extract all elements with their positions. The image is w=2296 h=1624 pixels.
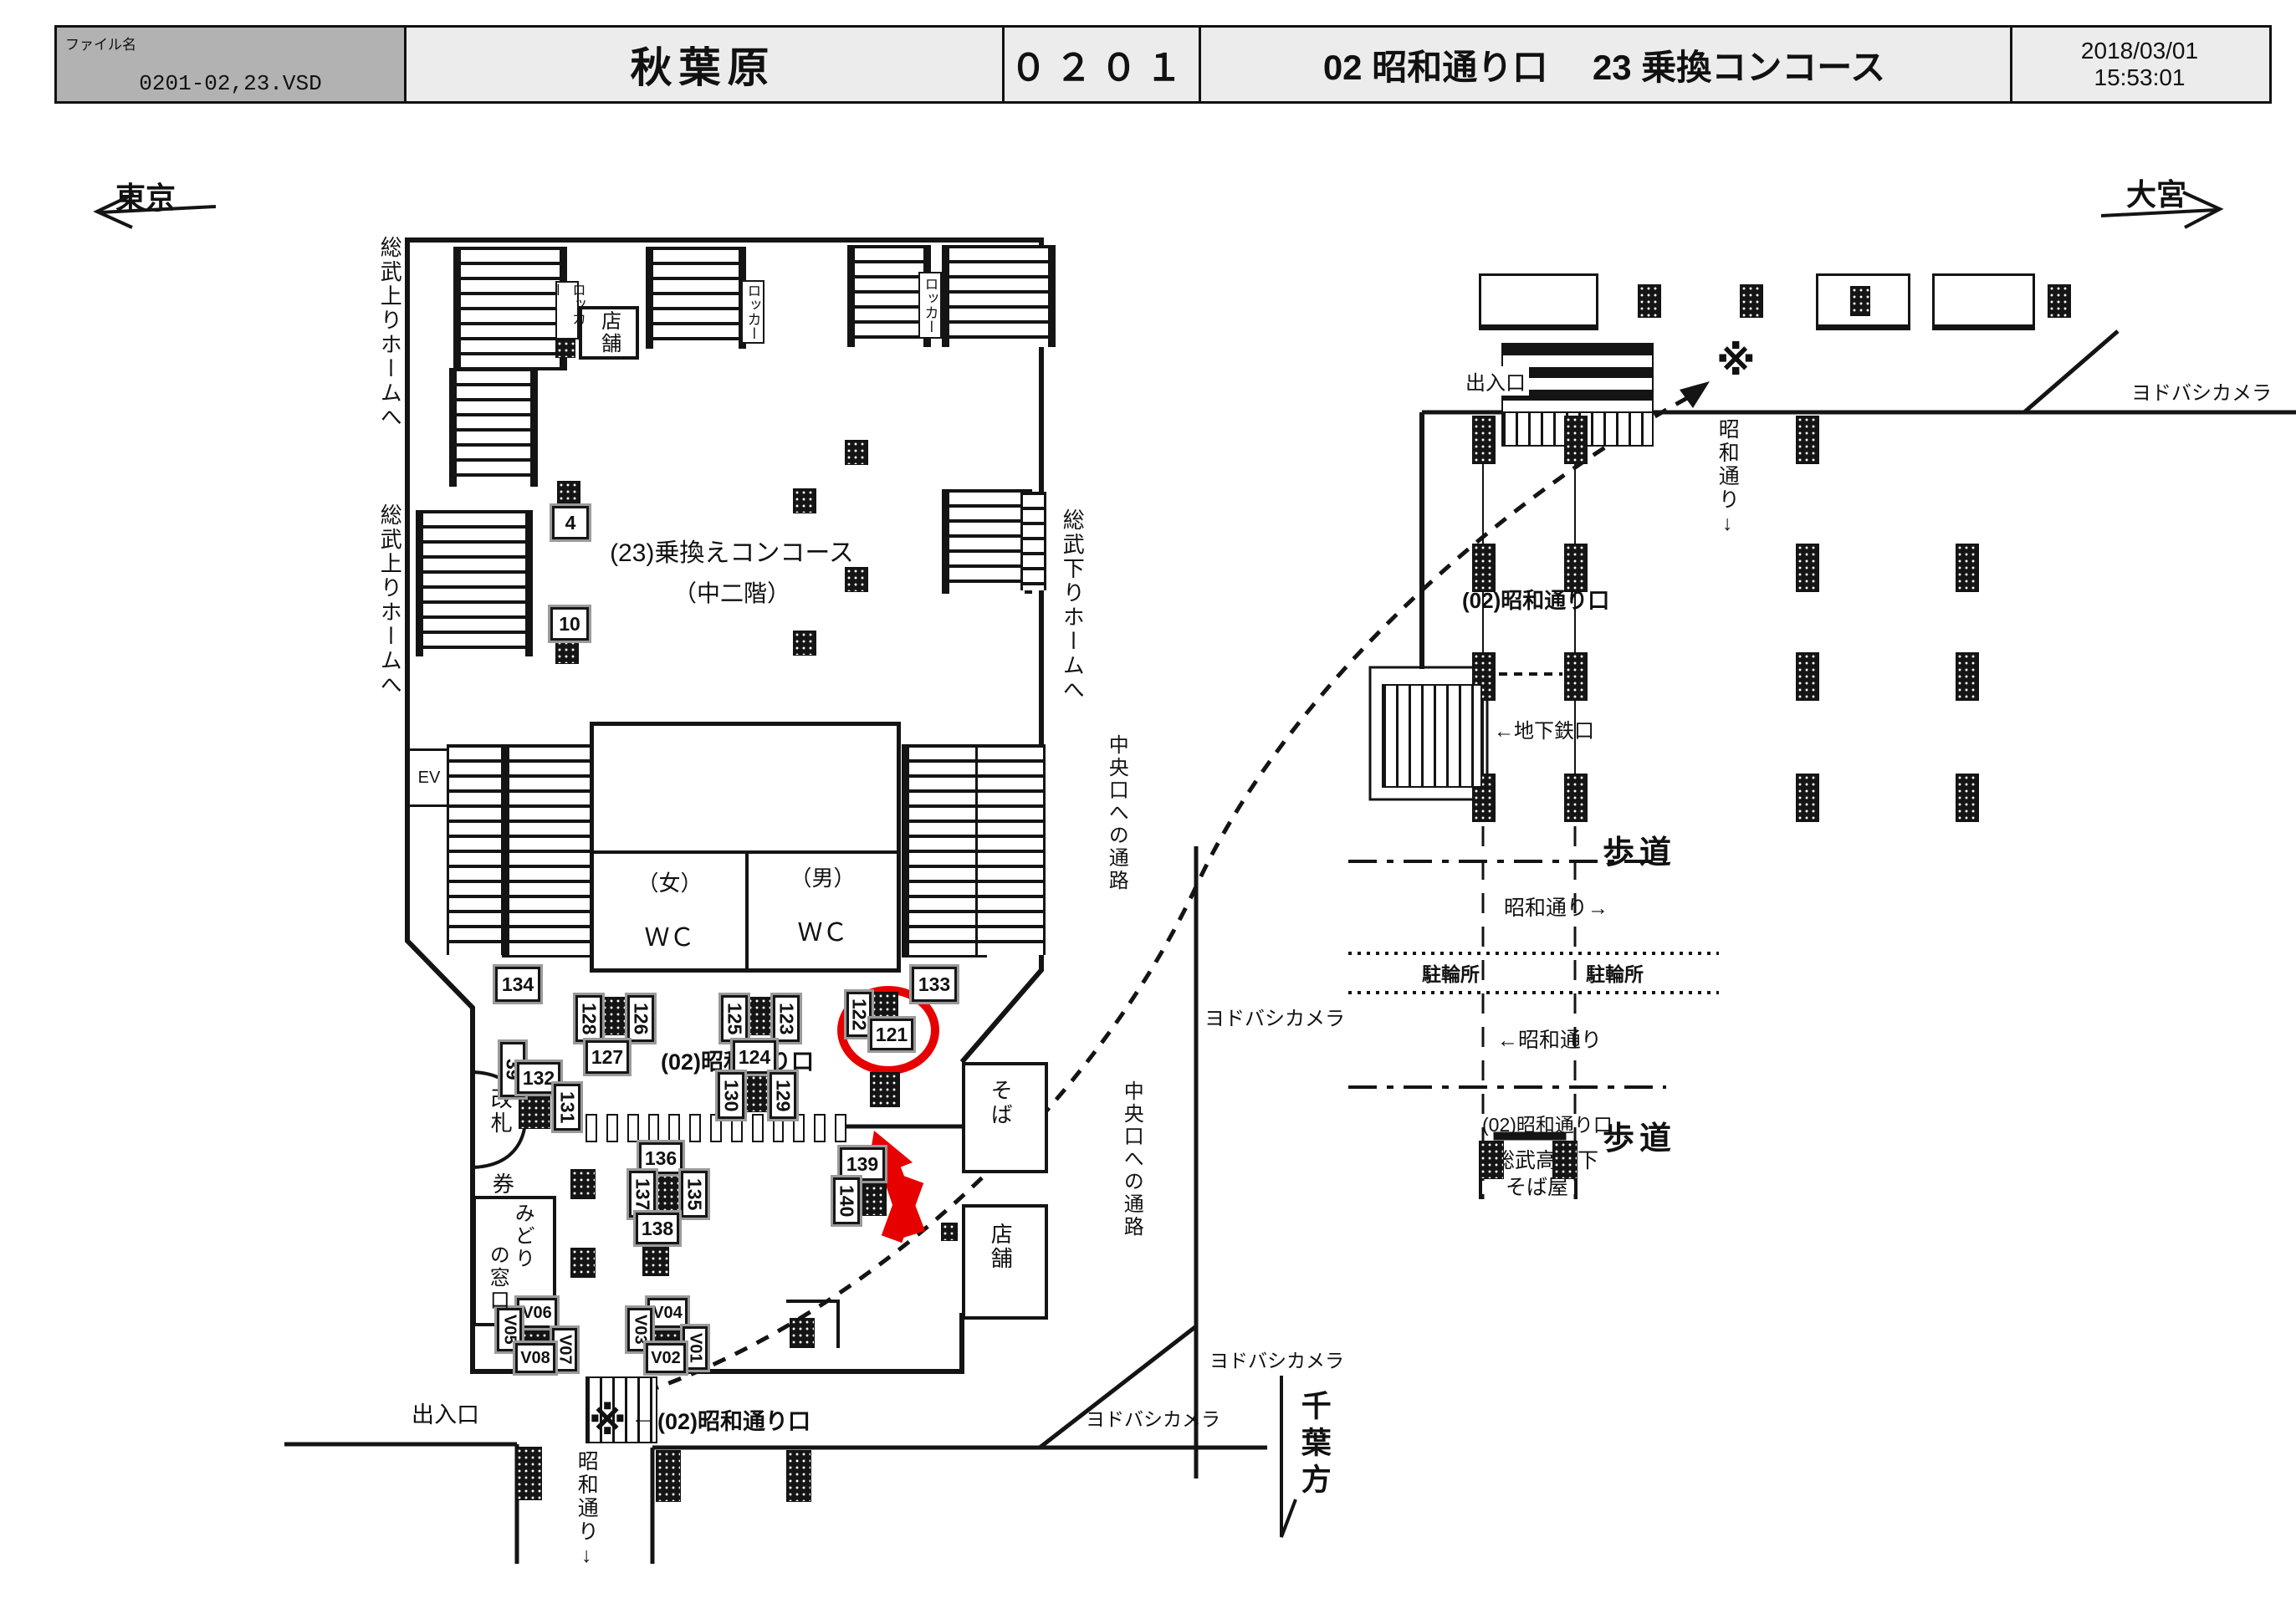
- soba-label: そば: [989, 1079, 1011, 1127]
- ad-sign-v02: V02: [646, 1343, 686, 1373]
- pillar: [555, 639, 579, 664]
- kome-mark-right: ※: [1716, 338, 1756, 385]
- bldg-outline-1: [1479, 273, 1598, 330]
- pillar: [790, 1318, 815, 1348]
- wc-men-wc: ＷＣ: [749, 912, 897, 948]
- stairs-wc-left: [502, 744, 601, 958]
- pillar: [870, 992, 898, 1019]
- ticket-gate-row: [586, 1114, 846, 1139]
- ticket-gate: [648, 1114, 660, 1142]
- ticket-gate: [627, 1114, 639, 1142]
- ticket-gate: [814, 1114, 826, 1142]
- stairs-mid-right-2: [1020, 492, 1046, 590]
- ad-sign-138: 138: [636, 1213, 679, 1244]
- exit-label-right-plan: 出入口: [1462, 366, 1529, 396]
- ticket-gate: [668, 1114, 680, 1142]
- pillar: [557, 481, 580, 506]
- ad-sign-v08: V08: [515, 1343, 555, 1373]
- showa-dori-right-label: 昭和通り→: [1504, 891, 1608, 922]
- ad-sign-10: 10: [550, 607, 589, 641]
- pillar: [743, 1074, 770, 1112]
- yodobashi-label-wall: ヨドバシカメラ: [1204, 1002, 1345, 1031]
- ad-sign-140: 140: [833, 1177, 860, 1224]
- showa-exit-label-bottom: (02)昭和通り口: [657, 1403, 811, 1436]
- ad-sign-125: 125: [721, 995, 748, 1042]
- ad-sign-123: 123: [773, 995, 800, 1042]
- showa-exit-label-right-plan: (02)昭和通り口: [1462, 584, 1609, 615]
- linework-layer: [0, 0, 2296, 1624]
- pillar: [845, 567, 868, 592]
- sidewalk-label-bottom: 歩道: [1603, 1112, 1676, 1158]
- pillar: [857, 1177, 887, 1216]
- pillar: [1956, 774, 1979, 822]
- yodobashi-label-street-right: ヨドバシカメラ: [1209, 1345, 1344, 1373]
- ad-sign-126: 126: [627, 995, 654, 1042]
- pillar: [746, 997, 773, 1035]
- pillar: [793, 488, 816, 513]
- ticket-gate: [586, 1114, 597, 1142]
- subway-entrance-label: ←地下鉄口: [1494, 714, 1594, 743]
- ticket-gate: [752, 1114, 764, 1142]
- ad-sign-v07: V07: [552, 1328, 577, 1371]
- pillar: [1638, 284, 1661, 318]
- ad-sign-129: 129: [770, 1072, 796, 1119]
- shop-room-label: 店舗: [989, 1223, 1011, 1271]
- yodobashi-label-top-right: ヨドバシカメラ: [2131, 376, 2272, 406]
- pillar: [2048, 284, 2071, 318]
- showa-exit-label-bottom-right-plan: (02)昭和通り口: [1482, 1109, 1613, 1137]
- stairs-mid-left: [449, 368, 538, 487]
- pillar: [1472, 416, 1496, 464]
- pillar: [656, 1450, 681, 1502]
- ad-sign-136: 136: [639, 1142, 683, 1174]
- ad-sign-124: 124: [733, 1040, 776, 1074]
- ad-sign-v04: V04: [647, 1298, 688, 1328]
- yodobashi-label-street-diag: ヨドバシカメラ: [1086, 1403, 1220, 1432]
- stairs-platform-up: [416, 510, 533, 656]
- pillar: [642, 1241, 669, 1276]
- pillar: [1564, 652, 1588, 701]
- stairs-wc-left-outer: [447, 744, 504, 955]
- ticket-gate: [689, 1114, 701, 1142]
- mezzanine-title: （中二階）: [577, 575, 887, 609]
- concourse-title: (23)乗換えコンコース: [577, 532, 887, 569]
- ad-sign-122: 122: [846, 992, 872, 1037]
- stairs-lockers-4: [942, 245, 1056, 347]
- midori-label-1: みどり: [512, 1203, 533, 1270]
- ad-sign-131: 131: [554, 1084, 580, 1131]
- locker-label-2: ロッカー: [741, 280, 764, 344]
- pillar: [793, 631, 816, 656]
- ev-box: EV: [407, 748, 451, 807]
- ticket-gate: [606, 1114, 618, 1142]
- pillar: [654, 1172, 681, 1211]
- stairs-wc-right-outer: [975, 744, 1046, 955]
- kome-mark-left: ※: [589, 1398, 626, 1443]
- pillar: [1796, 416, 1819, 464]
- pillar: [870, 1072, 900, 1107]
- ad-sign-139: 139: [840, 1147, 885, 1181]
- ad-sign-127: 127: [586, 1040, 629, 1074]
- sobu-down-label: 総武下りホームへ: [1061, 508, 1083, 702]
- locker-label-1: ロッカー: [555, 281, 579, 340]
- pillar: [845, 440, 868, 465]
- bldg-outline-3: [1932, 273, 2035, 330]
- pillar: [1796, 544, 1819, 592]
- ad-sign-128: 128: [575, 995, 602, 1042]
- ad-sign-v06: V06: [517, 1298, 557, 1328]
- pillar: [515, 1447, 542, 1500]
- ticket-gate: [835, 1114, 846, 1142]
- pillar: [1796, 774, 1819, 822]
- wc-block: （女） ＷＣ （男） ＷＣ: [590, 722, 901, 973]
- pillar: [1740, 284, 1763, 318]
- pillar: [601, 997, 627, 1035]
- stairs-wc-right: [902, 744, 987, 958]
- chuo-passage-label-1: 中央口への通路: [1106, 734, 1127, 892]
- locker-label-3: ロッカー: [918, 272, 942, 339]
- stairs-mid-right: [942, 489, 1032, 594]
- wc-women-wc: ＷＣ: [594, 917, 745, 953]
- bicycle-parking-left: 駐輪所: [1422, 958, 1480, 987]
- showa-street-down-right: 昭和通り↓: [1716, 418, 1738, 538]
- pillar: [941, 1223, 958, 1241]
- pillar: [555, 340, 575, 358]
- pillar: [786, 1450, 811, 1502]
- pillar: [1850, 286, 1870, 316]
- pillar: [570, 1169, 596, 1199]
- station-drawing-page: { "header": { "file_label": "ファイル名", "fi…: [0, 0, 2296, 1624]
- route-arrowhead: [1680, 381, 1710, 408]
- pillar: [1564, 774, 1588, 822]
- pillar: [1564, 416, 1588, 464]
- pillar: [1552, 1141, 1578, 1179]
- ad-sign-135: 135: [681, 1171, 708, 1218]
- sidewalk-label-top: 歩道: [1603, 826, 1676, 872]
- sobu-up-label-1: 総武上りホームへ: [378, 236, 401, 430]
- chiba-direction-label: 千葉方: [1298, 1390, 1330, 1500]
- bicycle-parking-right: 駐輪所: [1586, 958, 1644, 987]
- ad-sign-130: 130: [718, 1072, 744, 1119]
- pillar: [1479, 1141, 1504, 1179]
- showa-street-down-left: 昭和通り↓: [575, 1450, 597, 1570]
- pillar: [1956, 652, 1979, 701]
- kome-arrow-left: ←: [631, 1403, 656, 1432]
- sobu-up-label-2: 総武上りホームへ: [378, 503, 401, 697]
- ad-sign-v01: V01: [683, 1326, 708, 1370]
- ad-sign-134: 134: [495, 967, 540, 1002]
- chuo-passage-label-2: 中央口への通路: [1121, 1080, 1142, 1238]
- sobu-elevated-label: 総武高架下: [1494, 1144, 1598, 1174]
- ad-sign-133: 133: [912, 967, 957, 1002]
- wc-women-label: （女）: [594, 866, 745, 897]
- pillar: [570, 1248, 596, 1278]
- ad-sign-121: 121: [870, 1019, 913, 1050]
- exit-label-left: 出入口: [412, 1397, 479, 1429]
- wc-men-label: （男）: [749, 861, 897, 892]
- pillar: [1796, 652, 1819, 701]
- ad-sign-137: 137: [629, 1171, 656, 1218]
- ad-sign-4: 4: [552, 506, 589, 539]
- subway-stairs: [1382, 684, 1482, 788]
- showa-dori-left-label: ←昭和通り: [1497, 1024, 1602, 1054]
- midori-label-2: の窓口: [487, 1244, 508, 1312]
- pillar: [1956, 544, 1979, 592]
- stairs-lockers-2: [646, 247, 746, 349]
